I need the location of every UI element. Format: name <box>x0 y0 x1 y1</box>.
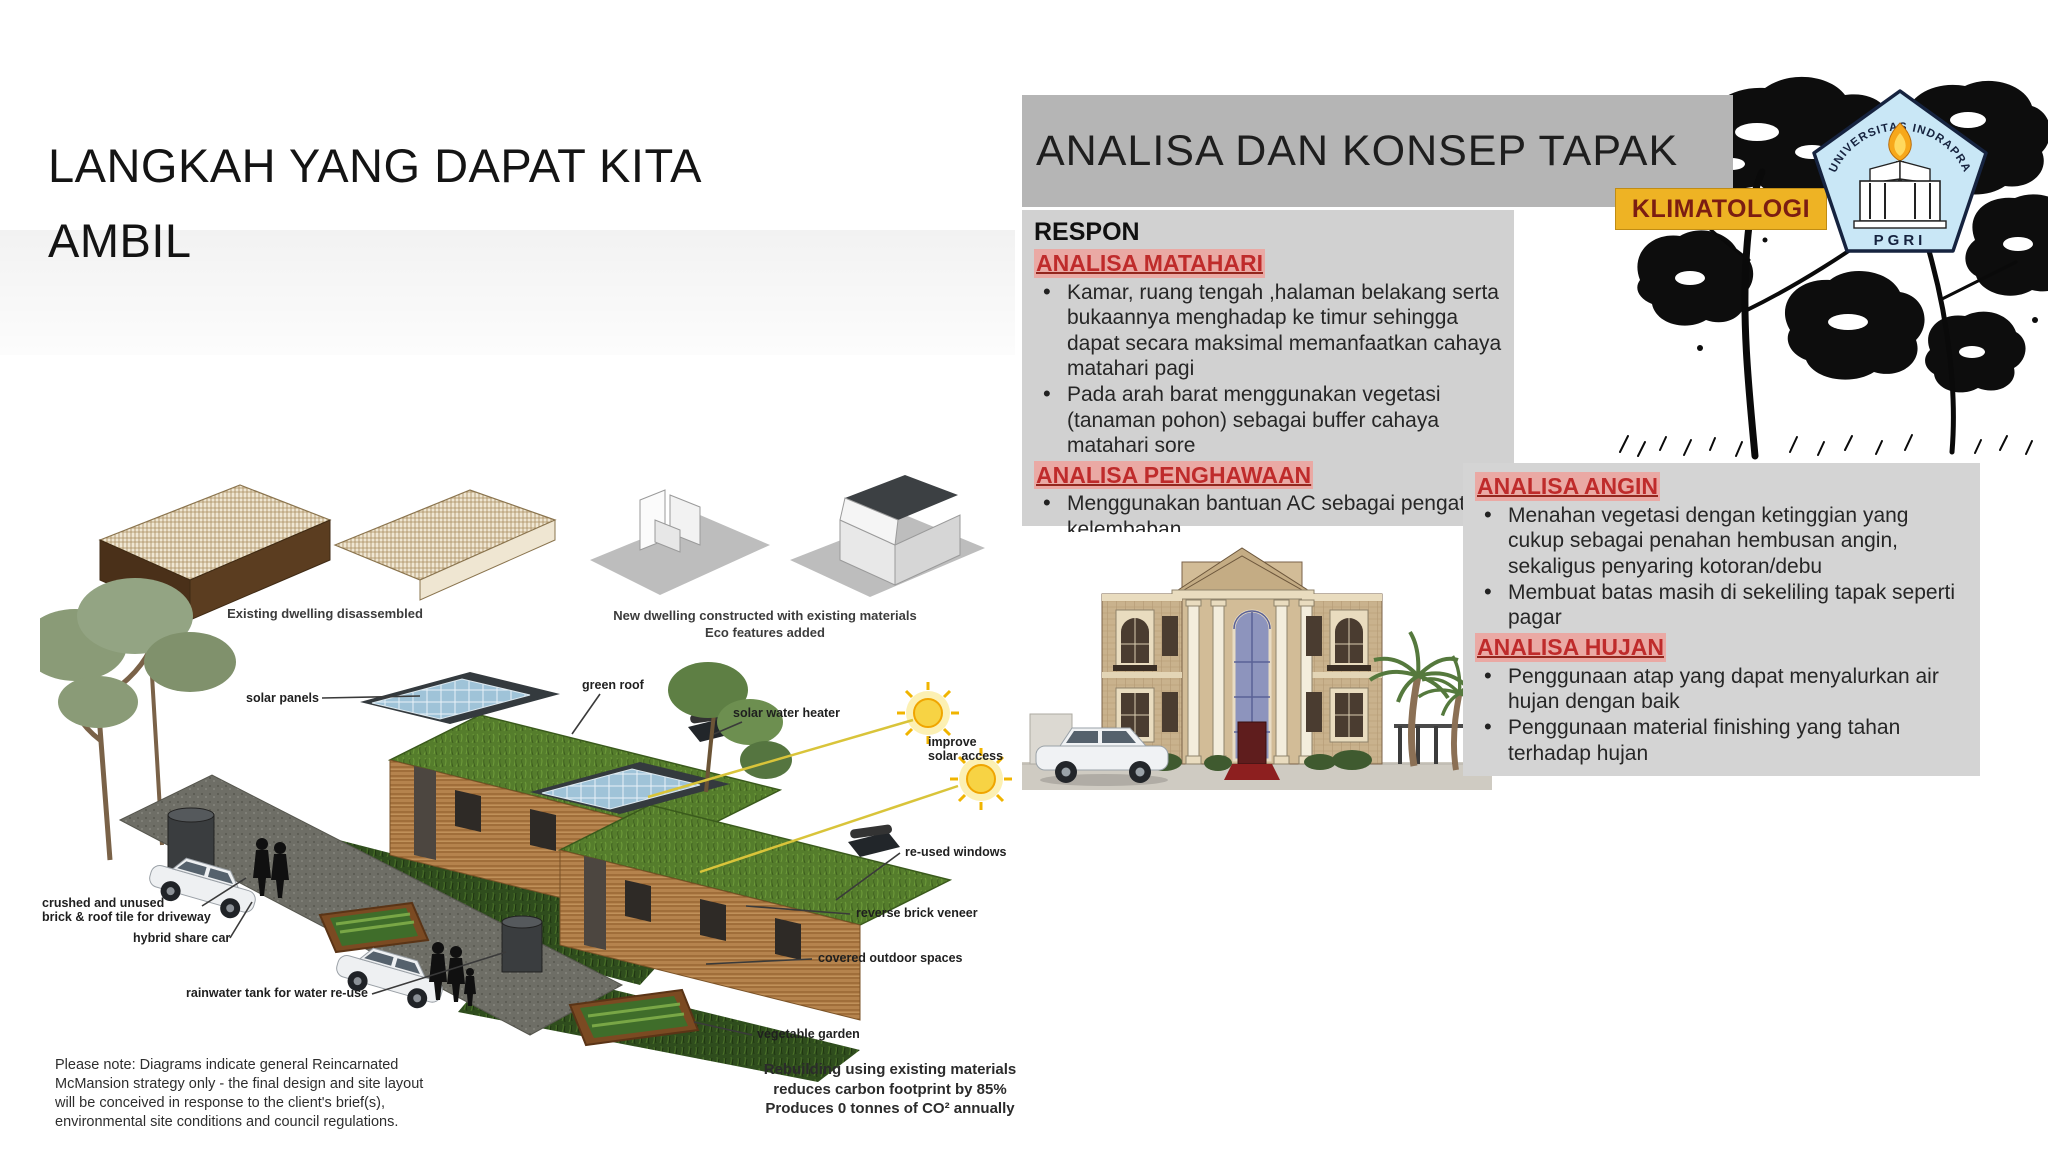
solar-water-heater-b <box>848 824 900 857</box>
heading-analisa-hujan: ANALISA HUJAN <box>1475 633 1666 662</box>
university-logo: UNIVERSITAS INDRAPRASTA PGRI <box>1808 85 1993 260</box>
caption-new-dwelling: New dwelling constructed with existing m… <box>575 608 955 642</box>
label-crushed-brick-driveway: crushed and unused brick & roof tile for… <box>42 896 227 925</box>
bullet-item: Penggunaan atap yang dapat menyalurkan a… <box>1475 664 1968 715</box>
matahari-bullet-list: Kamar, ruang tengah ,halaman belakang se… <box>1034 280 1502 459</box>
rainwater-tank-2 <box>502 916 542 972</box>
label-green-roof: green roof <box>582 678 644 692</box>
label-hybrid-share-car: hybrid share car <box>133 931 230 945</box>
section-header-title: ANALISA DAN KONSEP TAPAK <box>1036 127 1678 176</box>
respon-panel: RESPON ANALISA MATAHARI Kamar, ruang ten… <box>1022 210 1514 526</box>
bullet-item: Membuat batas masih di sekeliling tapak … <box>1475 580 1968 631</box>
label-solar-panels: solar panels <box>246 691 319 705</box>
diagram-impact-statement: Rebuilding using existing materials redu… <box>700 1060 1080 1119</box>
label-rainwater-tank: rainwater tank for water re-use <box>186 986 368 1000</box>
eco-house-diagram-illustration <box>40 458 1020 1098</box>
house-render-image <box>1022 532 1492 802</box>
heading-analisa-matahari: ANALISA MATAHARI <box>1034 249 1265 278</box>
heading-analisa-angin: ANALISA ANGIN <box>1475 472 1660 501</box>
label-reverse-brick-veneer: reverse brick veneer <box>856 906 978 920</box>
angin-hujan-panel: ANALISA ANGIN Menahan vegetasi dengan ke… <box>1463 463 1980 776</box>
new-dwelling-massing <box>590 475 985 597</box>
respon-title: RESPON <box>1034 218 1502 247</box>
bullet-item: Kamar, ruang tengah ,halaman belakang se… <box>1034 280 1502 382</box>
topic-badge: KLIMATOLOGI <box>1615 188 1827 230</box>
heading-analisa-penghawaan: ANALISA PENGHAWAAN <box>1034 461 1313 490</box>
angin-bullet-list: Menahan vegetasi dengan ketinggian yang … <box>1475 503 1968 631</box>
bullet-item: Penggunaan material finishing yang tahan… <box>1475 715 1968 766</box>
caption-existing-dwelling: Existing dwelling disassembled <box>170 606 480 623</box>
logo-bottom-text: PGRI <box>1874 232 1927 249</box>
label-solar-water-heater: solar water heater <box>733 706 840 720</box>
label-reused-windows: re-used windows <box>905 845 1006 859</box>
hujan-bullet-list: Penggunaan atap yang dapat menyalurkan a… <box>1475 664 1968 767</box>
bullet-item: Pada arah barat menggunakan vegetasi (ta… <box>1034 382 1502 458</box>
house-door <box>1238 722 1266 764</box>
diagram-disclaimer-note: Please note: Diagrams indicate general R… <box>55 1056 665 1131</box>
label-improve-solar-access: improve solar access <box>928 735 1018 764</box>
label-covered-outdoor-spaces: covered outdoor spaces <box>818 951 963 965</box>
bullet-item: Menahan vegetasi dengan ketinggian yang … <box>1475 503 1968 579</box>
presentation-slide: LANGKAH YANG DAPAT KITA AMBIL <box>0 0 2048 1152</box>
label-vegetable-garden: vegetable garden <box>757 1027 860 1041</box>
background-band <box>0 230 1015 355</box>
